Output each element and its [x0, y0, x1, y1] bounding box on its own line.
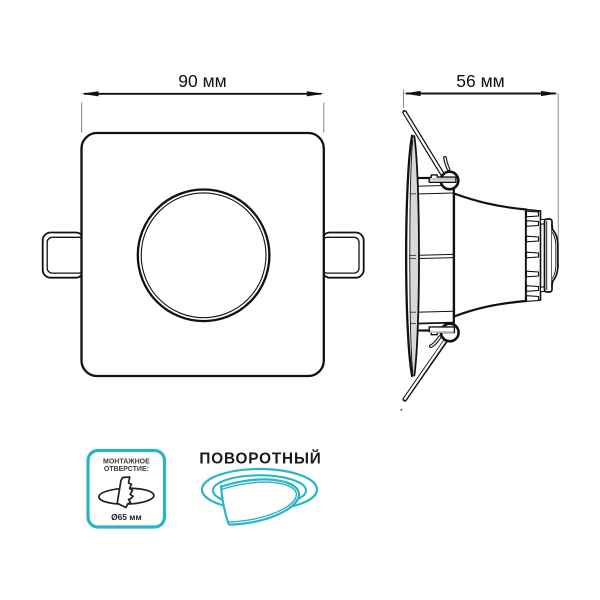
svg-text:ОТВЕРСТИЕ:: ОТВЕРСТИЕ: — [104, 466, 149, 473]
svg-text:90 мм: 90 мм — [178, 71, 226, 91]
svg-text:56 мм: 56 мм — [456, 71, 504, 91]
svg-text:Ø65 мм: Ø65 мм — [111, 512, 142, 522]
svg-text:ПОВОРОТНЫЙ: ПОВОРОТНЫЙ — [199, 449, 321, 467]
svg-text:МОНТАЖНОЕ: МОНТАЖНОЕ — [103, 459, 150, 466]
